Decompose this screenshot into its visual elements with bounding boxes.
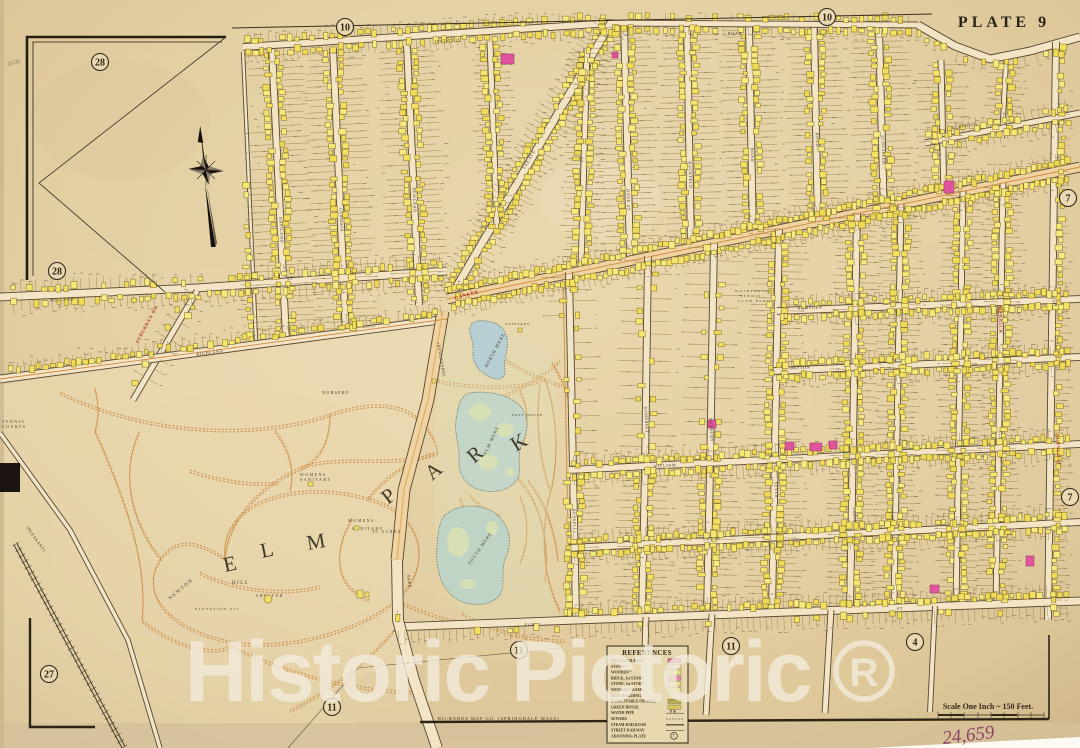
svg-text:ST: ST: [958, 557, 963, 563]
svg-text:HILL: HILL: [232, 581, 249, 586]
svg-text:DOVE ST: DOVE ST: [626, 189, 632, 211]
svg-text:CLUB BLDG: CLUB BLDG: [738, 299, 771, 303]
svg-text:ROAD: ROAD: [728, 31, 742, 36]
svg-text:CEDAR: CEDAR: [703, 536, 720, 542]
svg-text:SANITARY: SANITARY: [505, 322, 530, 326]
svg-text:10: 10: [822, 12, 832, 23]
svg-text:7: 7: [1068, 492, 1073, 503]
svg-text:COURTS: COURTS: [2, 424, 27, 429]
svg-text:7: 7: [673, 734, 675, 738]
svg-text:WOMENS: WOMENS: [348, 518, 375, 523]
svg-text:MIDLAND: MIDLAND: [50, 297, 74, 303]
svg-text:ROAD: ROAD: [750, 148, 755, 162]
svg-text:7: 7: [1066, 193, 1071, 204]
svg-text:Historic Pictoric: Historic Pictoric: [185, 624, 811, 720]
svg-text:27: 27: [44, 669, 54, 680]
svg-text:WASHINGTON: WASHINGTON: [735, 289, 773, 293]
svg-text:ELEVATION 672: ELEVATION 672: [195, 607, 240, 611]
svg-text:28: 28: [52, 266, 62, 277]
svg-text:PLATE 9: PLATE 9: [958, 14, 1050, 31]
svg-text:ST: ST: [287, 276, 293, 281]
svg-text:MERRICK: MERRICK: [998, 306, 1004, 334]
svg-text:ST: ST: [897, 477, 902, 483]
svg-text:SCHUSSLER: SCHUSSLER: [880, 135, 886, 164]
svg-text:POST HOUSE: POST HOUSE: [512, 413, 543, 417]
svg-text:R: R: [850, 651, 879, 695]
svg-text:HACKFELD: HACKFELD: [688, 161, 694, 188]
svg-text:STEAM RAILROAD: STEAM RAILROAD: [611, 723, 646, 727]
svg-text:30 ACRES: 30 ACRES: [372, 529, 402, 534]
svg-text:ST: ST: [579, 157, 584, 163]
svg-text:ROAD: ROAD: [815, 133, 820, 147]
svg-text:10: 10: [340, 22, 350, 33]
svg-text:4: 4: [913, 637, 918, 648]
svg-text:ADJOINING PLATE: ADJOINING PLATE: [611, 734, 647, 738]
svg-text:ST: ST: [897, 606, 903, 611]
svg-text:STREET RAILWAY: STREET RAILWAY: [611, 729, 645, 733]
svg-text:Scale One Inch ~ 150 Feet.: Scale One Inch ~ 150 Feet.: [943, 702, 1033, 711]
svg-text:28: 28: [95, 57, 105, 68]
svg-text:TENNIS: TENNIS: [740, 294, 761, 298]
svg-text:SEVER: SEVER: [774, 482, 780, 499]
svg-text:ST: ST: [1051, 297, 1056, 303]
svg-text:SANITARY: SANITARY: [300, 477, 332, 482]
svg-text:FRUIT: FRUIT: [852, 507, 858, 522]
svg-text:NURSERY: NURSERY: [322, 390, 350, 395]
